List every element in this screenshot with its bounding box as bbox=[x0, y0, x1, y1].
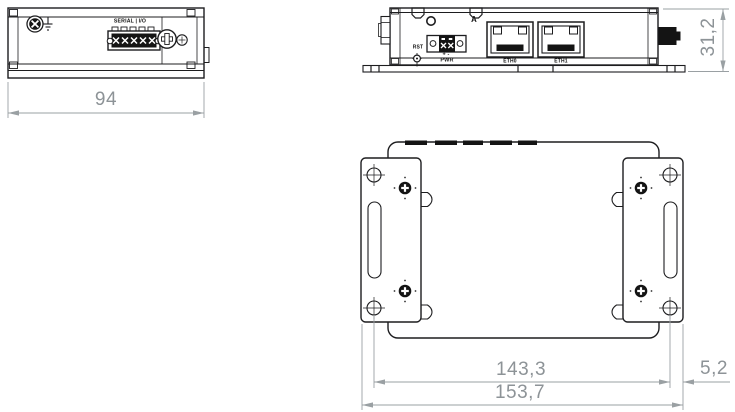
antenna-a-label: A bbox=[471, 16, 477, 25]
din-clip-icon bbox=[421, 305, 432, 319]
eth0-label: ETH0 bbox=[503, 58, 516, 64]
eth1-label: ETH1 bbox=[554, 58, 567, 64]
round-connector-icon bbox=[177, 35, 187, 45]
mounting-bracket-right bbox=[612, 158, 683, 322]
top-clip-icon bbox=[412, 8, 424, 18]
slot-offset-dimension-5-2: 5,2 bbox=[700, 358, 728, 380]
eth0-port-icon bbox=[487, 22, 533, 57]
phillips-screw-icon bbox=[158, 30, 176, 48]
earth-ground-icon bbox=[44, 17, 53, 31]
power-terminal-icon bbox=[427, 36, 466, 53]
vent-slots bbox=[405, 141, 537, 146]
serial-io-terminal-icon bbox=[107, 27, 161, 50]
din-clip-icon bbox=[612, 305, 623, 319]
width-dimension-94: 94 bbox=[95, 89, 117, 111]
ground-screw-icon bbox=[27, 16, 43, 32]
led-indicator-icon bbox=[427, 17, 435, 25]
pwr-label: PWR bbox=[440, 56, 453, 62]
sma-connector-left-icon bbox=[379, 17, 391, 45]
serial-io-label: SERIAL | I/O bbox=[114, 18, 146, 24]
hole-span-dimension-143-3: 143,3 bbox=[496, 359, 546, 381]
bottom-view bbox=[361, 141, 683, 339]
reset-label: RST bbox=[412, 44, 422, 50]
dimension-drawing-canvas: SERIAL | I/O A RST + - PWR ETH0 ETH1 94 … bbox=[0, 0, 735, 412]
drawing-linework bbox=[0, 0, 735, 412]
eth1-port-icon bbox=[538, 22, 584, 57]
din-clip-icon bbox=[612, 193, 623, 207]
dimension-5-2 bbox=[683, 379, 730, 384]
mounting-bracket-left bbox=[361, 158, 432, 322]
overall-width-dimension-153-7: 153,7 bbox=[495, 382, 545, 404]
height-dimension-31-2: 31,2 bbox=[698, 18, 720, 57]
front-view bbox=[363, 8, 685, 72]
din-clip-icon bbox=[421, 193, 432, 207]
rear-connector-stub bbox=[204, 48, 209, 63]
mounting-plate-edge bbox=[363, 66, 685, 73]
antenna-connector-icon bbox=[659, 27, 681, 45]
side-view bbox=[8, 8, 209, 78]
